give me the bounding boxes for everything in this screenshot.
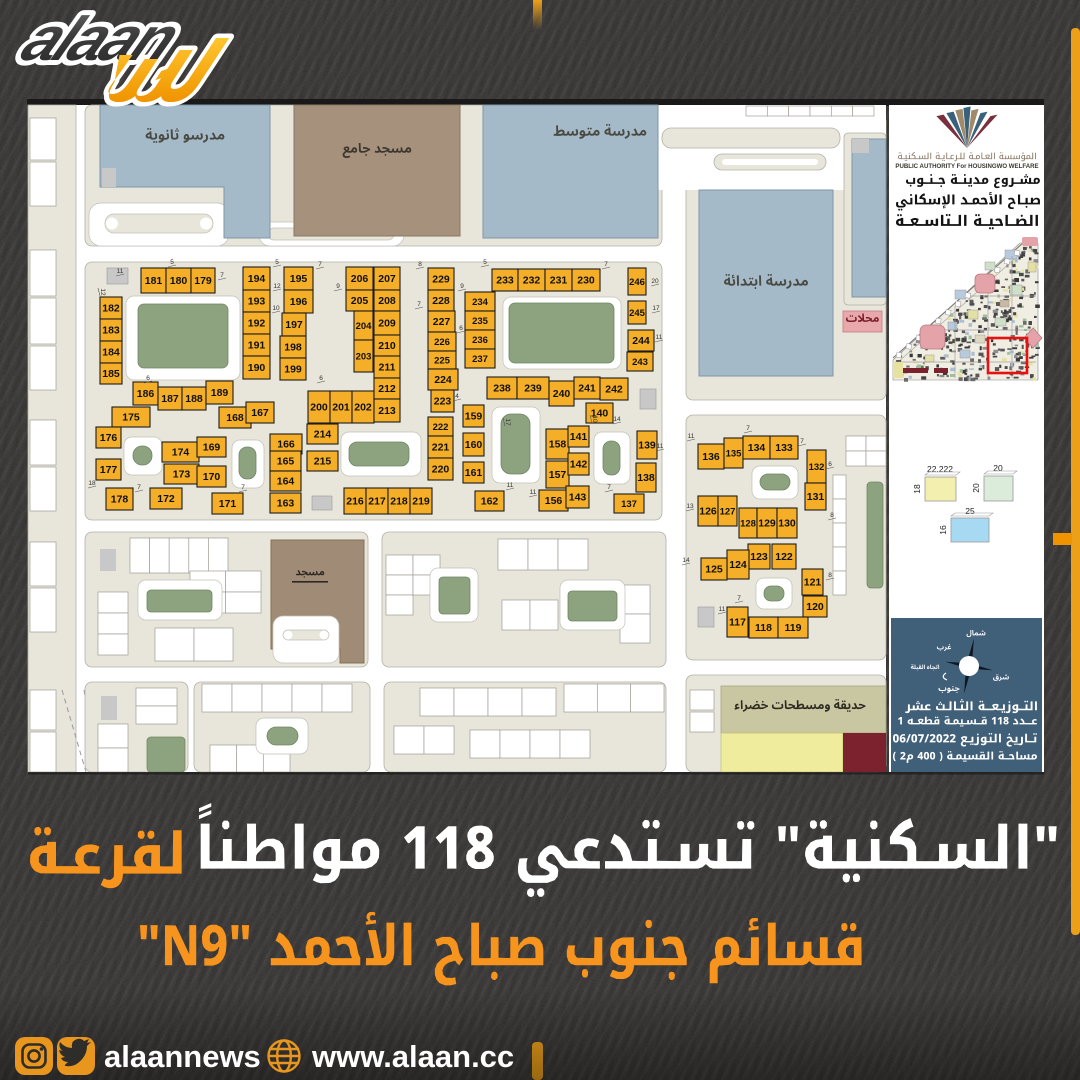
svg-text:138: 138 (637, 472, 655, 484)
svg-text:163: 163 (277, 498, 295, 510)
svg-text:119: 119 (785, 622, 802, 634)
svg-text:220: 220 (432, 464, 450, 476)
svg-text:190: 190 (248, 362, 266, 374)
svg-text:20: 20 (971, 483, 981, 493)
svg-text:238: 238 (493, 383, 511, 395)
svg-text:204: 204 (356, 321, 373, 332)
svg-text:133: 133 (775, 442, 793, 454)
svg-text:200: 200 (310, 402, 328, 414)
svg-text:181: 181 (145, 275, 163, 287)
svg-text:160: 160 (465, 439, 483, 451)
svg-text:241: 241 (578, 383, 596, 395)
svg-text:136: 136 (702, 451, 720, 463)
svg-text:182: 182 (102, 303, 120, 315)
svg-text:17: 17 (652, 305, 660, 312)
svg-text:121: 121 (804, 577, 822, 589)
svg-text:162: 162 (481, 496, 499, 508)
svg-text:20: 20 (651, 278, 659, 285)
svg-text:169: 169 (203, 442, 221, 454)
svg-text:5: 5 (170, 259, 174, 266)
svg-text:212: 212 (378, 383, 396, 395)
svg-text:208: 208 (378, 295, 396, 307)
svg-text:167: 167 (251, 407, 269, 419)
svg-text:7: 7 (746, 425, 750, 432)
svg-text:198: 198 (284, 342, 302, 354)
svg-text:227: 227 (433, 316, 451, 328)
svg-text:168: 168 (226, 412, 244, 424)
svg-text:129: 129 (758, 518, 776, 530)
svg-text:7: 7 (417, 301, 421, 308)
svg-text:132: 132 (809, 462, 825, 473)
svg-text:209: 209 (378, 318, 396, 330)
svg-text:11: 11 (688, 433, 695, 440)
svg-text:185: 185 (102, 368, 120, 380)
svg-text:194: 194 (248, 273, 266, 285)
svg-text:143: 143 (569, 492, 587, 504)
svg-text:13: 13 (686, 503, 694, 510)
svg-text:11: 11 (507, 482, 514, 489)
svg-text:8: 8 (828, 572, 832, 579)
svg-text:216: 216 (346, 496, 364, 508)
svg-text:158: 158 (549, 439, 567, 451)
svg-text:177: 177 (100, 464, 118, 476)
svg-text:184: 184 (102, 347, 120, 359)
svg-text:6: 6 (319, 375, 323, 382)
svg-text:188: 188 (185, 393, 203, 405)
svg-text:6: 6 (459, 325, 463, 332)
svg-text:211: 211 (379, 362, 396, 374)
svg-text:7: 7 (137, 484, 141, 491)
svg-text:234: 234 (472, 297, 489, 308)
svg-text:5: 5 (483, 259, 487, 266)
svg-text:244: 244 (632, 335, 650, 347)
svg-text:224: 224 (434, 374, 452, 386)
svg-text:223: 223 (434, 396, 452, 408)
svg-text:207: 207 (378, 273, 396, 285)
svg-text:206: 206 (351, 273, 369, 285)
svg-text:7: 7 (318, 261, 322, 268)
svg-text:170: 170 (203, 471, 221, 483)
svg-text:235: 235 (472, 316, 489, 327)
svg-text:174: 174 (172, 447, 190, 459)
svg-text:7: 7 (241, 484, 245, 491)
svg-text:134: 134 (748, 442, 766, 454)
svg-text:197: 197 (285, 319, 303, 331)
svg-text:193: 193 (248, 296, 266, 308)
svg-text:237: 237 (472, 354, 488, 365)
svg-text:142: 142 (570, 459, 588, 471)
svg-text:8: 8 (418, 261, 422, 268)
svg-text:7: 7 (220, 272, 224, 279)
svg-text:25: 25 (965, 506, 975, 516)
svg-text:215: 215 (314, 456, 332, 468)
svg-text:225: 225 (434, 356, 451, 367)
svg-text:6: 6 (828, 461, 832, 468)
svg-text:239: 239 (524, 383, 542, 395)
svg-text:192: 192 (248, 318, 266, 330)
svg-text:alaannews: alaannews (104, 1039, 261, 1074)
svg-text:166: 166 (277, 439, 295, 451)
svg-text:125: 125 (705, 564, 723, 576)
svg-text:18: 18 (88, 480, 96, 487)
svg-text:6: 6 (146, 375, 150, 382)
svg-text:127: 127 (720, 507, 736, 518)
svg-text:PUBLIC AUTHORITY For HOUSINGWO: PUBLIC AUTHORITY For HOUSINGWO WELFARE (895, 163, 1038, 170)
svg-text:4: 4 (455, 393, 459, 400)
svg-text:165: 165 (277, 456, 295, 468)
svg-text:14: 14 (613, 416, 621, 423)
svg-text:171: 171 (219, 498, 237, 510)
svg-text:217: 217 (368, 496, 386, 508)
svg-text:221: 221 (432, 442, 450, 454)
svg-text:11: 11 (656, 334, 663, 341)
svg-text:246: 246 (629, 277, 645, 288)
svg-text:183: 183 (102, 325, 120, 337)
svg-text:240: 240 (553, 388, 571, 400)
svg-text:236: 236 (472, 335, 488, 346)
svg-text:www.alaan.cc: www.alaan.cc (311, 1039, 514, 1074)
svg-text:178: 178 (111, 494, 129, 506)
svg-text:12: 12 (273, 283, 281, 290)
svg-text:205: 205 (351, 295, 369, 307)
svg-text:230: 230 (577, 275, 595, 287)
svg-text:201: 201 (332, 402, 350, 414)
svg-text:10: 10 (591, 415, 598, 423)
svg-text:214: 214 (314, 429, 332, 441)
svg-text:159: 159 (465, 411, 483, 423)
svg-text:5: 5 (275, 259, 279, 266)
svg-text:10: 10 (272, 305, 280, 312)
svg-text:229: 229 (432, 274, 450, 286)
svg-text:8: 8 (830, 512, 834, 519)
svg-text:157: 157 (549, 469, 567, 481)
svg-text:117: 117 (729, 617, 746, 629)
svg-text:18: 18 (912, 484, 922, 494)
svg-text:176: 176 (100, 432, 118, 444)
svg-text:180: 180 (170, 275, 188, 287)
svg-text:135: 135 (726, 449, 743, 460)
svg-text:233: 233 (496, 275, 514, 287)
svg-text:196: 196 (290, 296, 308, 308)
svg-text:191: 191 (248, 340, 266, 352)
svg-text:226: 226 (434, 337, 450, 348)
svg-text:130: 130 (778, 518, 796, 530)
svg-text:139: 139 (638, 440, 656, 452)
svg-text:11: 11 (657, 443, 664, 450)
svg-text:175: 175 (122, 412, 140, 424)
svg-text:123: 123 (750, 551, 768, 563)
svg-text:202: 202 (354, 402, 372, 414)
svg-text:120: 120 (806, 601, 824, 613)
svg-text:232: 232 (523, 275, 541, 287)
svg-text:156: 156 (545, 495, 563, 507)
svg-text:164: 164 (277, 476, 295, 488)
svg-text:17: 17 (504, 418, 511, 426)
svg-text:7: 7 (604, 261, 608, 268)
svg-text:161: 161 (465, 467, 483, 479)
svg-text:9: 9 (336, 283, 340, 290)
svg-text:186: 186 (137, 388, 155, 400)
svg-text:122: 122 (775, 551, 793, 563)
svg-text:173: 173 (173, 469, 191, 481)
svg-text:210: 210 (378, 340, 396, 352)
svg-text:213: 213 (378, 405, 396, 417)
svg-text:12: 12 (99, 288, 106, 296)
svg-text:228: 228 (432, 295, 450, 307)
svg-text:219: 219 (412, 496, 430, 508)
svg-text:7: 7 (800, 438, 804, 445)
svg-text:11: 11 (117, 268, 124, 275)
svg-text:179: 179 (194, 275, 212, 287)
svg-text:172: 172 (157, 493, 175, 505)
svg-text:199: 199 (284, 364, 302, 376)
svg-text:231: 231 (550, 275, 568, 287)
svg-text:242: 242 (605, 384, 623, 396)
svg-text:203: 203 (356, 352, 372, 363)
svg-text:7: 7 (737, 595, 741, 602)
svg-text:245: 245 (629, 308, 646, 319)
svg-text:187: 187 (161, 393, 179, 405)
svg-text:7: 7 (607, 484, 611, 491)
svg-text:141: 141 (570, 431, 588, 443)
svg-text:22.222: 22.222 (927, 464, 953, 474)
svg-text:20: 20 (993, 463, 1003, 473)
svg-text:124: 124 (729, 559, 747, 571)
svg-text:11: 11 (530, 489, 537, 496)
svg-text:195: 195 (290, 273, 308, 285)
svg-text:128: 128 (740, 519, 756, 530)
svg-text:131: 131 (807, 491, 825, 503)
svg-text:137: 137 (621, 499, 637, 510)
svg-text:243: 243 (632, 357, 648, 368)
svg-text:118: 118 (755, 622, 772, 634)
svg-text:218: 218 (390, 496, 408, 508)
svg-text:14: 14 (682, 557, 690, 564)
svg-text:9: 9 (460, 283, 464, 290)
svg-text:11: 11 (719, 606, 726, 613)
svg-text:222: 222 (433, 422, 449, 433)
svg-text:126: 126 (699, 506, 717, 518)
svg-text:189: 189 (211, 387, 229, 399)
svg-text:16: 16 (938, 525, 948, 535)
